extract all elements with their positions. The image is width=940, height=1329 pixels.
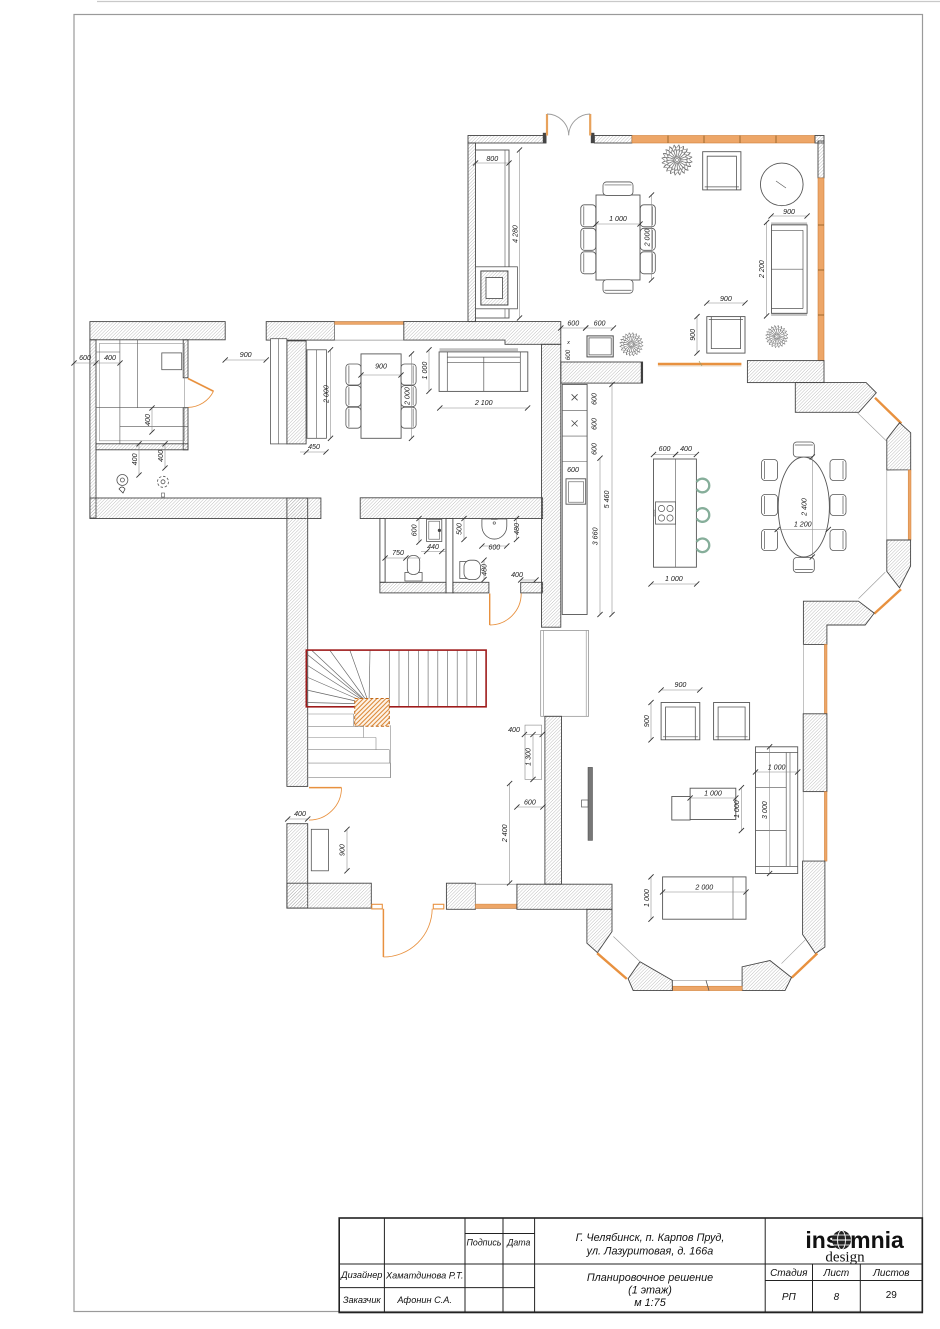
svg-text:Стадия: Стадия bbox=[770, 1268, 808, 1279]
svg-text:600: 600 bbox=[591, 443, 599, 455]
svg-text:400: 400 bbox=[131, 453, 139, 465]
svg-text:900: 900 bbox=[240, 351, 252, 359]
svg-text:x: x bbox=[566, 340, 570, 346]
svg-text:2 000: 2 000 bbox=[322, 385, 330, 404]
svg-text:1 000: 1 000 bbox=[643, 889, 651, 907]
svg-text:Дизайнер: Дизайнер bbox=[340, 1270, 382, 1280]
svg-text:600: 600 bbox=[659, 445, 671, 453]
svg-text:Афонин С.А.: Афонин С.А. bbox=[396, 1295, 452, 1305]
svg-text:600: 600 bbox=[591, 393, 599, 405]
svg-text:400: 400 bbox=[511, 571, 523, 579]
svg-text:design: design bbox=[825, 1250, 865, 1266]
svg-text:900: 900 bbox=[339, 844, 347, 856]
svg-text:400: 400 bbox=[157, 450, 165, 462]
svg-text:8: 8 bbox=[834, 1292, 840, 1303]
svg-text:480: 480 bbox=[513, 523, 521, 535]
svg-text:600: 600 bbox=[524, 799, 536, 807]
svg-text:Заказчик: Заказчик bbox=[343, 1295, 382, 1305]
svg-text:600: 600 bbox=[79, 354, 91, 362]
svg-text:400: 400 bbox=[508, 726, 520, 734]
svg-text:1 000: 1 000 bbox=[665, 575, 683, 583]
svg-text:2 000: 2 000 bbox=[403, 387, 411, 406]
svg-text:Г. Челябинск, п. Карпов Пруд,: Г. Челябинск, п. Карпов Пруд, bbox=[576, 1232, 725, 1244]
svg-text:600: 600 bbox=[567, 320, 579, 328]
svg-text:3 660: 3 660 bbox=[592, 527, 600, 545]
svg-text:4 280: 4 280 bbox=[511, 225, 519, 243]
svg-text:Дата: Дата bbox=[506, 1238, 530, 1248]
svg-text:29: 29 bbox=[886, 1290, 898, 1301]
svg-text:Лист: Лист bbox=[823, 1268, 850, 1279]
svg-text:1 000: 1 000 bbox=[421, 362, 429, 380]
svg-text:450: 450 bbox=[308, 443, 320, 451]
svg-text:Листов: Листов bbox=[872, 1268, 909, 1279]
svg-text:400: 400 bbox=[294, 810, 306, 818]
svg-text:2 000: 2 000 bbox=[694, 884, 713, 892]
svg-text:600: 600 bbox=[594, 320, 606, 328]
svg-text:400: 400 bbox=[680, 445, 692, 453]
svg-text:600: 600 bbox=[411, 524, 419, 536]
svg-text:2 100: 2 100 bbox=[474, 399, 493, 407]
svg-text:XXXX: XXXX bbox=[652, 509, 656, 516]
svg-text:2 200: 2 200 bbox=[758, 260, 766, 279]
svg-text:900: 900 bbox=[689, 329, 697, 341]
svg-text:400: 400 bbox=[144, 414, 152, 426]
svg-text:500: 500 bbox=[456, 523, 464, 535]
svg-text:900: 900 bbox=[643, 715, 651, 727]
svg-text:400: 400 bbox=[104, 354, 116, 362]
svg-text:Планировочное решение: Планировочное решение bbox=[587, 1272, 713, 1284]
svg-text:1 000: 1 000 bbox=[733, 800, 741, 818]
svg-text:900: 900 bbox=[675, 681, 687, 689]
svg-text:1 300: 1 300 bbox=[525, 748, 533, 766]
svg-text:(1 этаж): (1 этаж) bbox=[628, 1285, 672, 1297]
svg-text:900: 900 bbox=[720, 295, 732, 303]
svg-text:2 400: 2 400 bbox=[501, 824, 509, 843]
svg-text:750: 750 bbox=[392, 549, 404, 557]
svg-text:480: 480 bbox=[481, 564, 489, 576]
svg-text:м 1:75: м 1:75 bbox=[634, 1297, 666, 1309]
svg-text:2 000: 2 000 bbox=[643, 229, 651, 248]
svg-text:600: 600 bbox=[488, 544, 500, 552]
svg-text:2 400: 2 400 bbox=[801, 498, 809, 517]
svg-text:1 000: 1 000 bbox=[704, 790, 722, 798]
svg-text:1 000: 1 000 bbox=[609, 215, 627, 223]
svg-text:Хаматдинова Р.Т.: Хаматдинова Р.Т. bbox=[385, 1271, 463, 1281]
svg-text:ул. Лазуритовая, д. 166а: ул. Лазуритовая, д. 166а bbox=[586, 1246, 714, 1258]
svg-text:600: 600 bbox=[591, 418, 599, 430]
svg-text:1 000: 1 000 bbox=[768, 764, 786, 772]
svg-text:1 200: 1 200 bbox=[794, 521, 812, 529]
svg-text:РП: РП bbox=[782, 1292, 797, 1303]
svg-text:600: 600 bbox=[565, 349, 572, 360]
svg-text:900: 900 bbox=[375, 363, 387, 371]
svg-text:800: 800 bbox=[486, 155, 498, 163]
svg-text:600: 600 bbox=[567, 466, 579, 474]
svg-text:3 000: 3 000 bbox=[761, 801, 769, 819]
svg-text:Подпись: Подпись bbox=[467, 1238, 502, 1248]
svg-text:900: 900 bbox=[783, 208, 795, 216]
svg-text:5 460: 5 460 bbox=[603, 491, 611, 509]
